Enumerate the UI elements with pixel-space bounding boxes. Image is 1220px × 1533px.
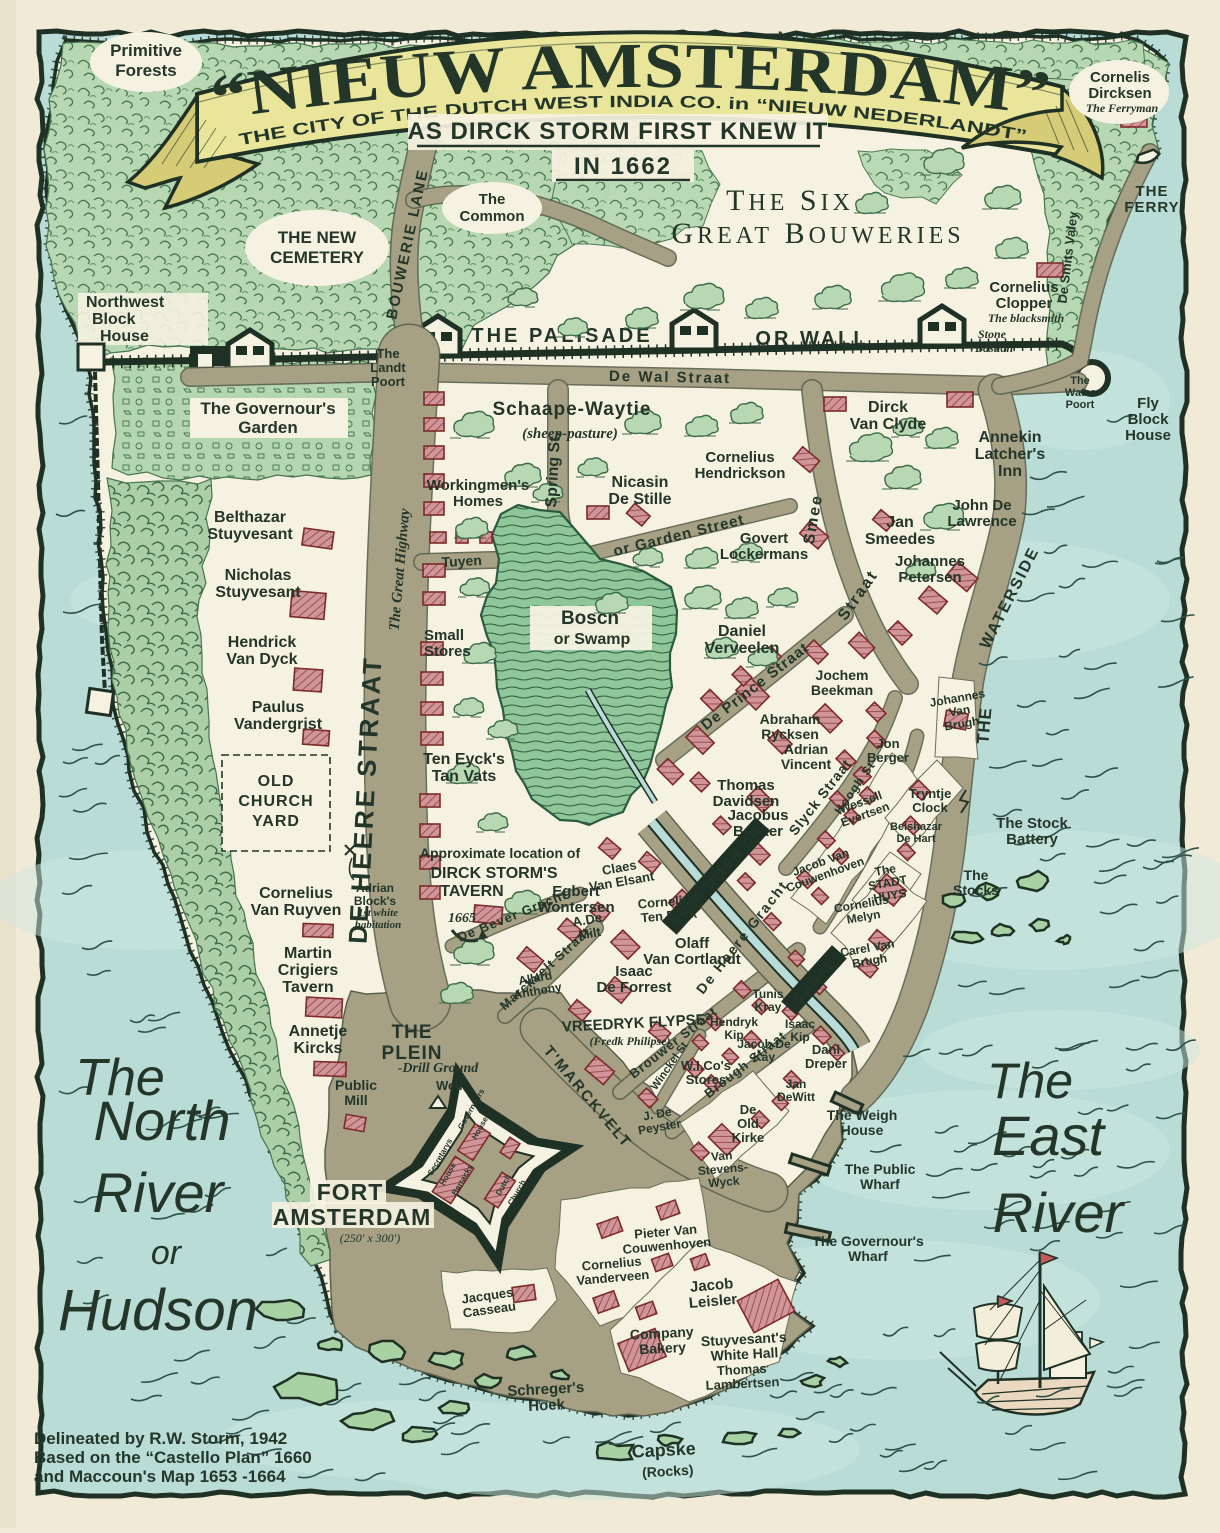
svg-text:JochemBeekman: JochemBeekman — [811, 667, 873, 698]
svg-text:OR WALL: OR WALL — [755, 328, 868, 350]
svg-text:(Rocks): (Rocks) — [642, 1462, 694, 1481]
svg-text:The Governour's: The Governour's — [200, 399, 335, 418]
svg-text:CorneliusHendrickson: CorneliusHendrickson — [695, 449, 786, 482]
svg-text:TAVERN: TAVERN — [440, 883, 503, 900]
svg-text:Approximate location of: Approximate location of — [420, 845, 581, 861]
svg-text:The blacksmith: The blacksmith — [988, 311, 1065, 325]
svg-text:CorneliusClopper: CorneliusClopper — [989, 279, 1058, 312]
svg-text:Stone: Stone — [978, 327, 1007, 341]
svg-text:W.I.Co'sStores: W.I.Co'sStores — [681, 1058, 731, 1087]
svg-text:SmallStores: SmallStores — [424, 627, 471, 660]
svg-text:The: The — [987, 1053, 1073, 1109]
svg-text:ThomasDavidsen: ThomasDavidsen — [713, 777, 780, 810]
svg-text:Block: Block — [92, 311, 136, 328]
svg-text:Capske: Capske — [631, 1438, 696, 1461]
svg-text:The: The — [479, 191, 506, 208]
svg-text:Delineated by R.W. Storm, 1942: Delineated by R.W. Storm, 1942 — [34, 1429, 287, 1448]
svg-text:Common: Common — [460, 208, 525, 225]
svg-text:DIRCK STORM'S: DIRCK STORM'S — [430, 865, 557, 882]
svg-text:Well: Well — [436, 1078, 463, 1093]
svg-text:THE NEW: THE NEW — [278, 228, 357, 247]
svg-text:NicholasStuyvesant: NicholasStuyvesant — [215, 567, 301, 601]
svg-text:John DeLawrence: John DeLawrence — [947, 497, 1016, 530]
svg-text:NicasinDe Stille: NicasinDe Stille — [608, 474, 671, 508]
svg-text:Bastian: Bastian — [974, 341, 1013, 355]
svg-text:AS DIRCK STORM FIRST KNEW IT: AS DIRCK STORM FIRST KNEW IT — [408, 118, 829, 145]
svg-text:MartinCrigiersTavern: MartinCrigiersTavern — [278, 945, 339, 996]
svg-text:BelthazarStuyvesant: BelthazarStuyvesant — [207, 509, 293, 543]
svg-text:or: or — [151, 1234, 183, 1272]
svg-text:FORT: FORT — [317, 1179, 384, 1205]
svg-text:River: River — [993, 1181, 1126, 1244]
svg-text:Based on the “Castello Plan” 1: Based on the “Castello Plan” 1660 — [34, 1448, 312, 1467]
svg-text:The StockBattery: The StockBattery — [996, 815, 1068, 848]
svg-text:CorneliusVan Ruyven: CorneliusVan Ruyven — [251, 885, 342, 919]
svg-text:Hudson: Hudson — [58, 1278, 258, 1343]
svg-text:Garden: Garden — [238, 418, 298, 437]
svg-text:CorneliusTen Eyck: CorneliusTen Eyck — [637, 891, 699, 925]
svg-text:TryntjeClock: TryntjeClock — [909, 786, 952, 815]
svg-text:River: River — [93, 1161, 226, 1224]
svg-text:Tuyen: Tuyen — [441, 552, 482, 570]
svg-text:-Drill Ground: -Drill Ground — [398, 1061, 480, 1076]
svg-text:Northwest: Northwest — [86, 294, 165, 311]
svg-text:Stuyvesant'sWhite Hall: Stuyvesant'sWhite Hall — [700, 1329, 788, 1364]
svg-text:JohannesPetersen: JohannesPetersen — [895, 553, 965, 586]
svg-text:BelshazarDe Hart: BelshazarDe Hart — [890, 821, 943, 845]
svg-text:AdrianVincent: AdrianVincent — [781, 741, 832, 772]
svg-text:HendrickVan Dyck: HendrickVan Dyck — [226, 634, 297, 668]
svg-text:AMSTERDAM: AMSTERDAM — [273, 1204, 432, 1230]
svg-text:Forests: Forests — [115, 61, 176, 80]
svg-text:CEMETERY: CEMETERY — [270, 248, 364, 267]
svg-text:Ten Eyck'sTan Vats: Ten Eyck'sTan Vats — [423, 751, 505, 785]
svg-text:IN 1662: IN 1662 — [574, 153, 672, 180]
svg-text:De Wal Straat: De Wal Straat — [609, 368, 731, 387]
svg-text:or Swamp: or Swamp — [554, 631, 631, 648]
svg-text:North: North — [94, 1089, 231, 1152]
svg-text:(250' x 300'): (250' x 300') — [340, 1231, 400, 1245]
svg-text:Primitive: Primitive — [110, 41, 182, 60]
svg-text:Schaape-Waytie: Schaape-Waytie — [492, 399, 651, 420]
svg-text:The Ferryman: The Ferryman — [1086, 101, 1159, 115]
svg-text:AbrahamRycksen: AbrahamRycksen — [760, 711, 821, 742]
svg-text:House: House — [100, 328, 149, 345]
svg-text:CompanyBakery: CompanyBakery — [629, 1323, 695, 1357]
svg-text:JacobLeisler: JacobLeisler — [687, 1275, 738, 1312]
svg-text:(sheep-pasture): (sheep-pasture) — [522, 426, 618, 442]
svg-text:and Maccoun's Map 1653 -1664: and Maccoun's Map 1653 -1664 — [34, 1467, 286, 1486]
svg-text:CornelisDircksen: CornelisDircksen — [1088, 69, 1151, 102]
svg-text:AnnetjeKircks: AnnetjeKircks — [289, 1023, 348, 1057]
svg-text:East: East — [992, 1104, 1106, 1167]
svg-text:TunisKray: TunisKray — [752, 987, 783, 1014]
